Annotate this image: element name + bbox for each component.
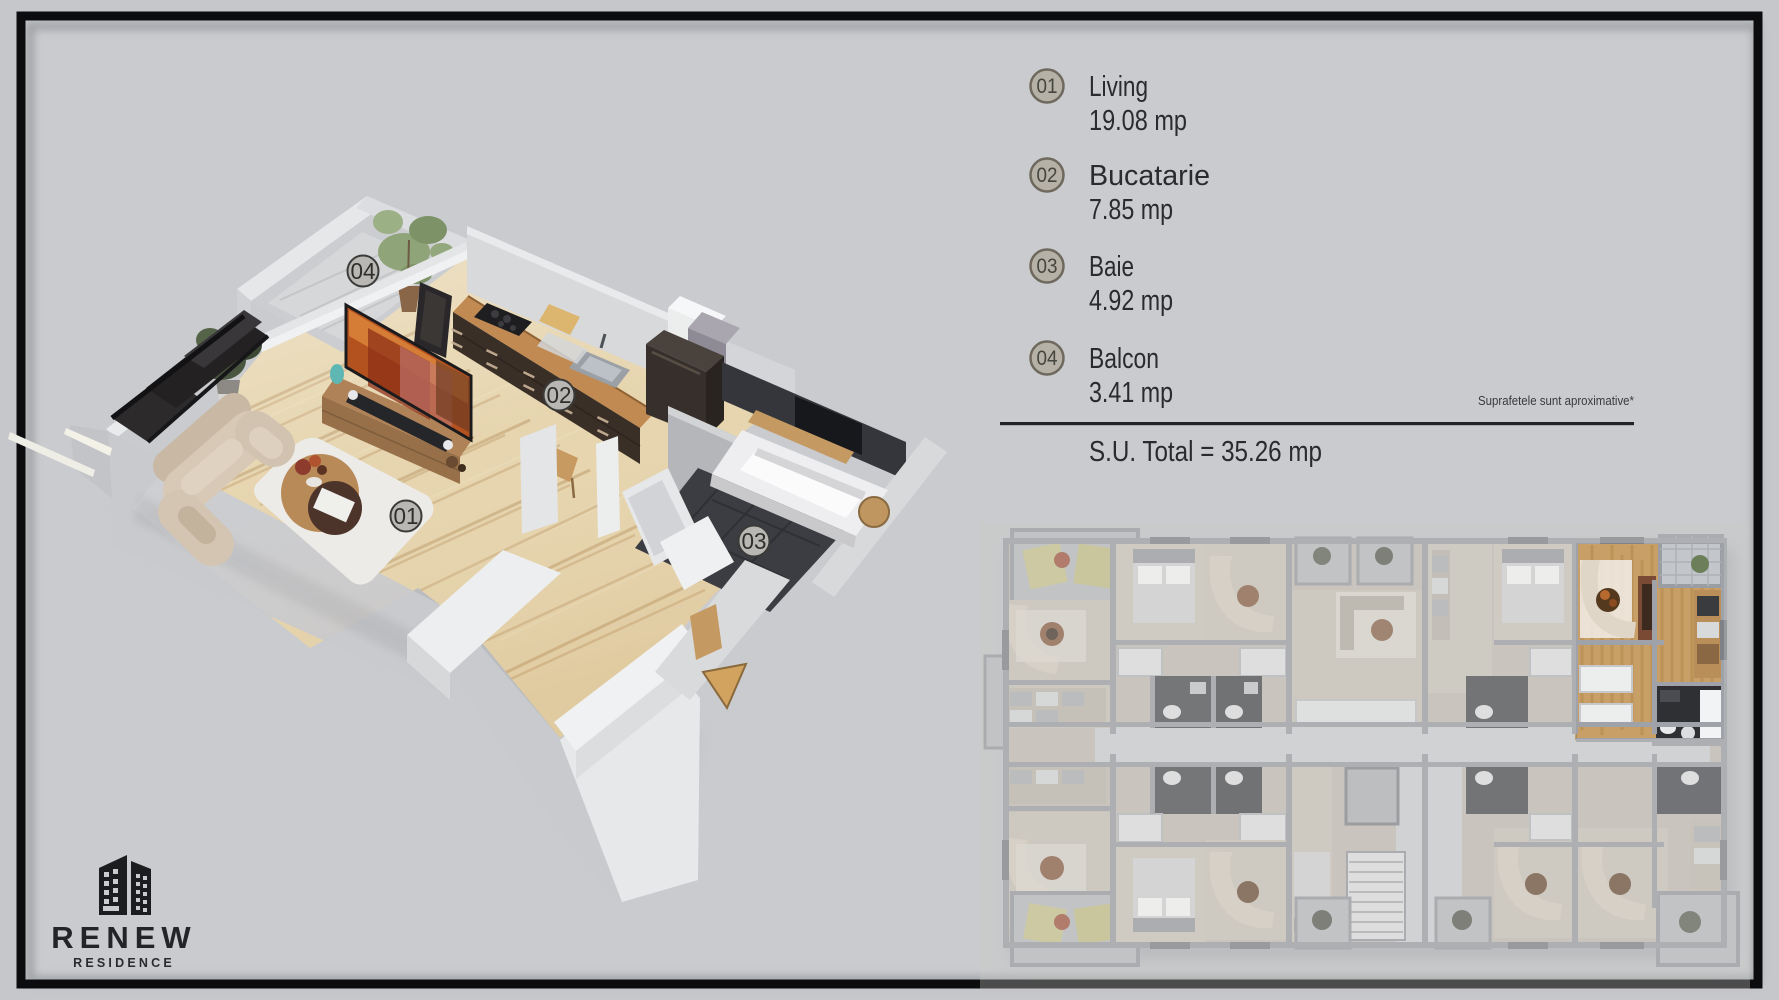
svg-text:03: 03 [742, 528, 767, 554]
svg-text:01: 01 [1037, 75, 1058, 98]
svg-text:Bucatarie: Bucatarie [1089, 160, 1210, 192]
svg-text:03: 03 [1037, 255, 1058, 278]
svg-text:Baie: Baie [1089, 251, 1134, 283]
svg-text:RESIDENCE: RESIDENCE [73, 956, 175, 970]
svg-text:19.08 mp: 19.08 mp [1089, 105, 1187, 137]
svg-text:S.U. Total = 35.26 mp: S.U. Total = 35.26 mp [1089, 436, 1322, 468]
svg-text:Balcon: Balcon [1089, 343, 1159, 375]
svg-text:02: 02 [547, 382, 572, 408]
svg-text:02: 02 [1037, 164, 1058, 187]
svg-text:01: 01 [394, 503, 419, 529]
svg-text:04: 04 [351, 258, 376, 284]
svg-text:Suprafetele sunt aproximative*: Suprafetele sunt aproximative* [1478, 394, 1634, 408]
svg-text:3.41 mp: 3.41 mp [1089, 377, 1173, 409]
svg-text:Living: Living [1089, 71, 1148, 103]
svg-text:7.85 mp: 7.85 mp [1089, 194, 1173, 226]
svg-text:4.92 mp: 4.92 mp [1089, 285, 1173, 317]
svg-text:04: 04 [1037, 347, 1058, 370]
svg-text:RENEW: RENEW [51, 920, 196, 955]
